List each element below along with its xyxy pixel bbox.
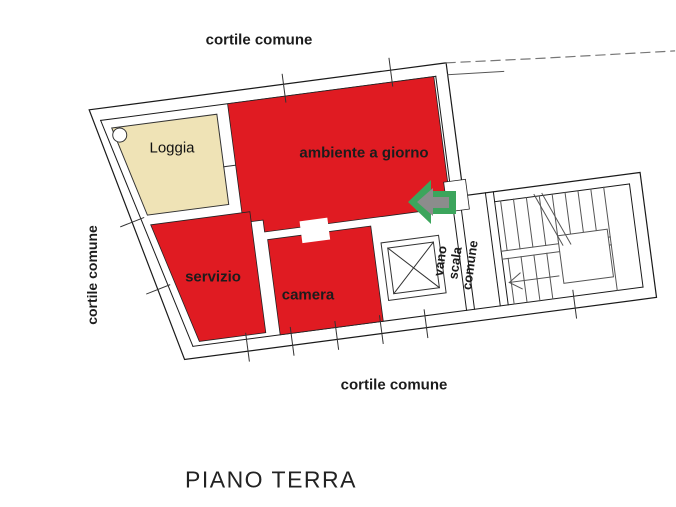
- label-room-service: servizio: [185, 269, 241, 286]
- room-bedroom-shape: [268, 226, 384, 335]
- floor-plan-drawing: [0, 0, 676, 507]
- label-courtyard-top: cortile comune: [206, 32, 313, 49]
- door-gap-living-bedroom: [300, 218, 331, 243]
- label-room-loggia: Loggia: [149, 140, 194, 157]
- label-room-living: ambiente a giorno: [299, 145, 428, 162]
- label-room-bedroom: camera: [282, 287, 335, 304]
- boundary-dashed-line: [446, 33, 674, 81]
- floor-title: PIANO TERRA: [185, 467, 357, 494]
- boundary-short-line: [448, 67, 504, 78]
- floor-plan-page: cortile comune cortile comune cortile co…: [0, 0, 676, 507]
- label-courtyard-bottom: cortile comune: [341, 377, 448, 394]
- label-courtyard-left: cortile comune: [84, 225, 100, 325]
- label-stairwell: vano scala comune: [429, 235, 480, 291]
